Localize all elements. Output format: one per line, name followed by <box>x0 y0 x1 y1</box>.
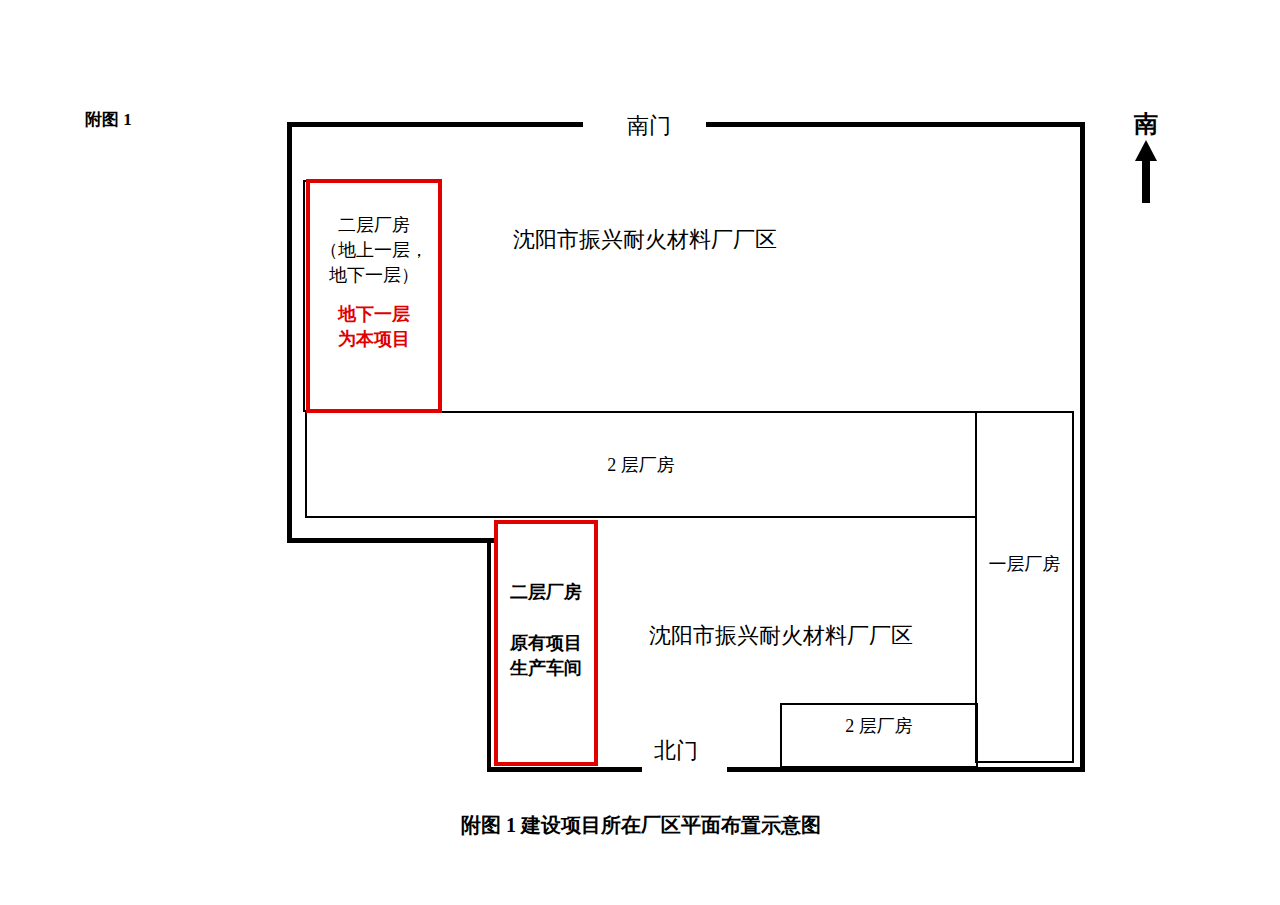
project-building-box: 二层厂房 （地上一层， 地下一层） 地下一层 为本项目 <box>306 179 442 413</box>
factory-area-label-upper: 沈阳市振兴耐火材料厂厂区 <box>445 225 845 255</box>
boundary-step-vertical <box>487 538 491 772</box>
site-plan-page: 附图 1 2 层厂房 一层厂房 2 层厂房 二层厂房 （地上一层， 地下一层） … <box>0 0 1280 905</box>
factory-area-label-lower: 沈阳市振兴耐火材料厂厂区 <box>581 621 981 651</box>
boundary-bottom-left-segment <box>487 767 642 772</box>
building-small-two-storey: 2 层厂房 <box>780 703 978 768</box>
up-arrow-icon <box>1135 140 1157 161</box>
figure-tag: 附图 1 <box>85 108 132 131</box>
compass-south-label: 南 <box>1115 108 1177 140</box>
figure-caption: 附图 1 建设项目所在厂区平面布置示意图 <box>391 812 891 839</box>
building-one-storey: 一层厂房 <box>975 411 1074 763</box>
building-one-storey-label: 一层厂房 <box>989 553 1061 575</box>
up-arrow-stem <box>1142 159 1150 203</box>
building-small-two-storey-label: 2 层厂房 <box>845 715 913 737</box>
boundary-step-horizontal <box>287 538 497 543</box>
building-long-two-storey-label: 2 层厂房 <box>607 454 675 476</box>
existing-building-line1: 二层厂房 <box>498 580 594 605</box>
boundary-right <box>1080 122 1085 772</box>
boundary-top-left-segment <box>287 122 583 127</box>
project-building-line2: （地上一层， <box>310 238 438 263</box>
boundary-top-right-segment <box>706 122 1085 127</box>
building-long-two-storey: 2 层厂房 <box>305 411 977 518</box>
project-building-line3: 地下一层） <box>310 263 438 288</box>
boundary-left <box>287 122 292 543</box>
spacer <box>498 605 594 631</box>
south-gate-label: 南门 <box>597 111 701 141</box>
existing-building-line2: 原有项目 <box>498 631 594 656</box>
project-building-highlight2: 为本项目 <box>310 327 438 352</box>
spacer <box>310 288 438 302</box>
project-building-highlight1: 地下一层 <box>310 302 438 327</box>
existing-building-line3: 生产车间 <box>498 656 594 681</box>
project-building-line1: 二层厂房 <box>310 213 438 238</box>
north-gate-label: 北门 <box>626 736 726 766</box>
